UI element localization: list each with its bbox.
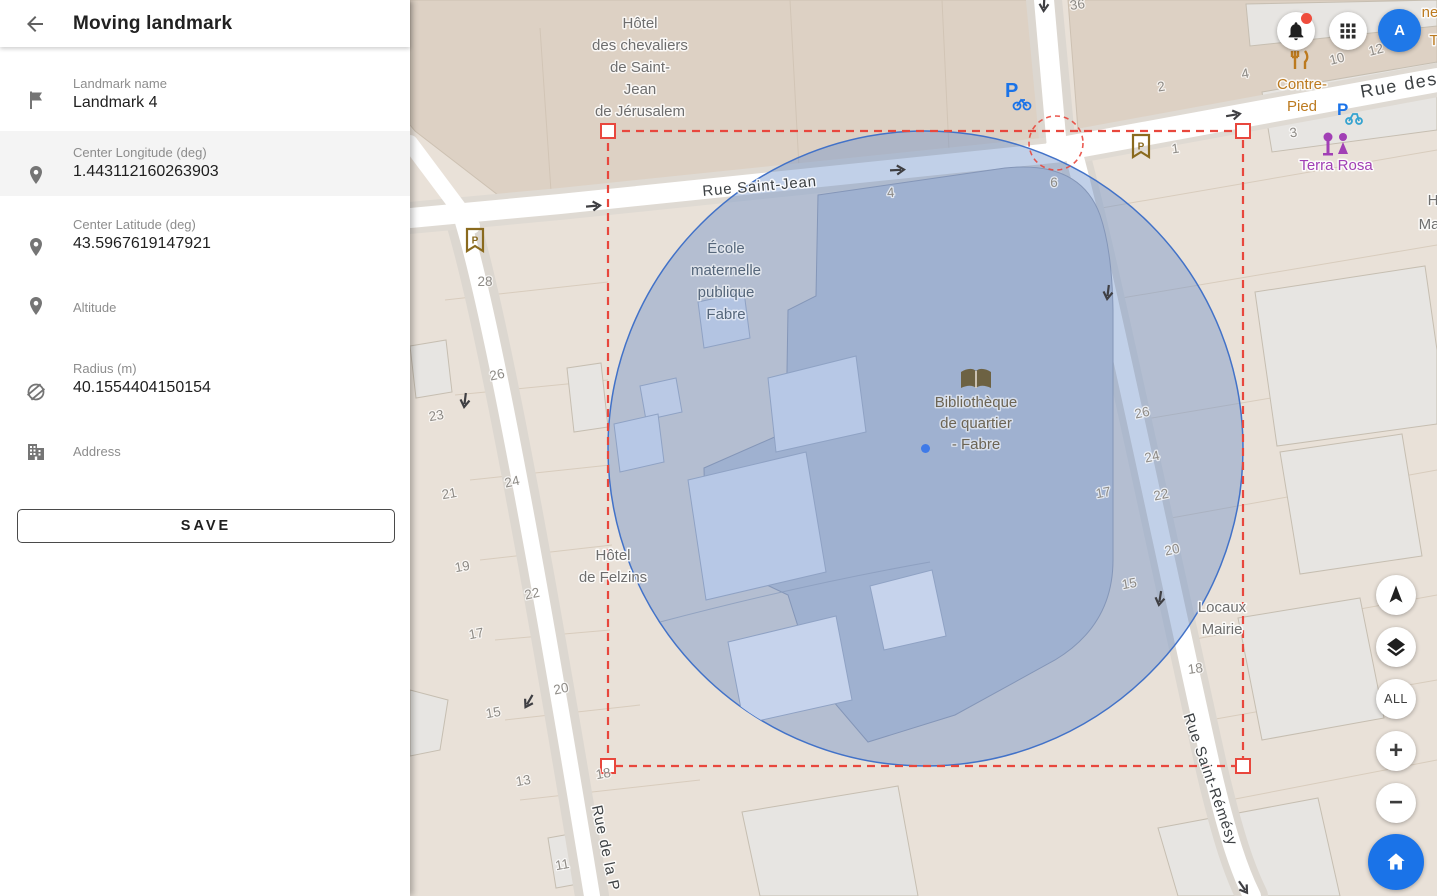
map-label: publique [698, 284, 755, 301]
field-value: 43.5967619147921 [73, 233, 211, 255]
back-arrow-icon[interactable] [23, 12, 47, 36]
map-label: 11 [554, 856, 570, 873]
field-value: 40.1554404150154 [73, 377, 211, 399]
map-label: maternelle [691, 262, 761, 279]
all-label: ALL [1384, 692, 1408, 706]
map-label: Pied [1287, 98, 1317, 115]
zoom-out-button[interactable]: − [1376, 783, 1416, 823]
field-radius[interactable]: Radius (m) 40.1554404150154 [0, 347, 410, 412]
map-label: Bibliothèque [935, 394, 1018, 411]
map-label: 26 [488, 366, 506, 384]
map-label: 13 [515, 772, 532, 789]
selection-handle[interactable] [601, 124, 615, 138]
field-value: 1.443112160263903 [73, 161, 219, 183]
field-center-longitude[interactable]: Center Longitude (deg) 1.443112160263903 [0, 131, 410, 196]
field-center-latitude[interactable]: Center Latitude (deg) 43.5967619147921 [0, 203, 410, 268]
map-label: de Jérusalem [595, 103, 685, 120]
place-icon [24, 295, 48, 319]
place-icon [24, 236, 48, 260]
map-label: Fabre [706, 306, 745, 323]
layers-icon [1384, 635, 1408, 659]
map-label: 22 [1152, 486, 1170, 504]
field-address[interactable]: Address [0, 427, 410, 475]
map-label: 18 [595, 765, 612, 782]
map-label: 20 [1163, 541, 1181, 559]
compass-icon [1384, 583, 1408, 607]
map-area: P P P P [410, 0, 1437, 896]
map-label: H [1428, 192, 1437, 209]
map-label: des chevaliers [592, 37, 688, 54]
map-label: 26 [1133, 404, 1151, 422]
field-value: Landmark 4 [73, 92, 167, 114]
compass-button[interactable] [1376, 575, 1416, 615]
apps-grid-button[interactable] [1329, 12, 1367, 50]
building-icon [24, 439, 48, 463]
map-label: Mairie [1202, 621, 1243, 638]
map-label: 6 [1050, 175, 1058, 190]
flag-icon [24, 88, 48, 112]
map-label: École [707, 240, 745, 257]
map-label: 23 [428, 407, 445, 424]
field-altitude[interactable]: Altitude [0, 283, 410, 331]
home-icon [1383, 849, 1409, 875]
svg-text:P: P [1138, 142, 1145, 153]
panel-title: Moving landmark [73, 13, 232, 35]
map-label: 22 [523, 585, 541, 603]
map-label: 15 [485, 704, 502, 721]
notification-dot [1301, 13, 1312, 24]
map-label: 18 [1187, 660, 1204, 677]
map-label: ne [1422, 4, 1437, 21]
place-icon [24, 164, 48, 188]
avatar-letter: A [1394, 22, 1405, 39]
map-label: - Fabre [952, 436, 1000, 453]
map-label: 36 [1069, 0, 1086, 13]
map-label: de Saint- [610, 59, 670, 76]
map-label: Jean [624, 81, 657, 98]
map-label: Locaux [1198, 599, 1247, 616]
map-label: 21 [441, 485, 458, 502]
svg-text:P: P [472, 236, 479, 247]
field-label: Landmark name [73, 75, 167, 92]
minus-icon: − [1389, 791, 1403, 815]
home-button[interactable] [1368, 834, 1424, 890]
map-label: de Felzins [579, 569, 647, 586]
all-button[interactable]: ALL [1376, 679, 1416, 719]
map-label: Hôtel [622, 15, 657, 32]
map-label: 20 [552, 680, 570, 698]
field-label: Center Longitude (deg) [73, 144, 219, 161]
notifications-button[interactable] [1277, 12, 1315, 50]
field-label: Address [73, 443, 121, 460]
map-label: Terra Rosa [1299, 157, 1373, 174]
zoom-in-button[interactable]: + [1376, 731, 1416, 771]
map-label: Ma [1419, 216, 1437, 233]
field-label: Radius (m) [73, 360, 211, 377]
map-label: de quartier [940, 415, 1012, 432]
map-label: 15 [1121, 575, 1138, 592]
plus-icon: + [1389, 739, 1403, 763]
save-button[interactable]: SAVE [17, 509, 395, 543]
field-landmark-name[interactable]: Landmark name Landmark 4 [0, 66, 410, 124]
svg-text:P: P [1005, 80, 1018, 102]
map-label: 19 [454, 558, 471, 575]
map-label: 17 [1095, 484, 1112, 501]
map-label: Hôtel [595, 547, 630, 564]
landmark-panel: Moving landmark Landmark name Landmark 4… [0, 0, 410, 896]
map-canvas[interactable]: P P P P [410, 0, 1437, 896]
panel-header: Moving landmark [0, 0, 410, 47]
selection-handle[interactable] [1236, 124, 1250, 138]
svg-text:P: P [1337, 100, 1348, 119]
map-label: 17 [468, 625, 485, 642]
library-icon [961, 369, 991, 388]
landmark-center-dot [921, 444, 930, 453]
map-label: Contre- [1277, 76, 1327, 93]
field-label: Center Latitude (deg) [73, 216, 211, 233]
apps-grid-icon [1338, 21, 1358, 41]
save-label: SAVE [181, 518, 231, 534]
field-label: Altitude [73, 299, 116, 316]
avatar[interactable]: A [1378, 9, 1421, 52]
selection-handle[interactable] [1236, 759, 1250, 773]
layers-button[interactable] [1376, 627, 1416, 667]
map-label: T [1429, 32, 1437, 49]
map-label: 28 [477, 274, 492, 289]
radius-icon [24, 380, 48, 404]
